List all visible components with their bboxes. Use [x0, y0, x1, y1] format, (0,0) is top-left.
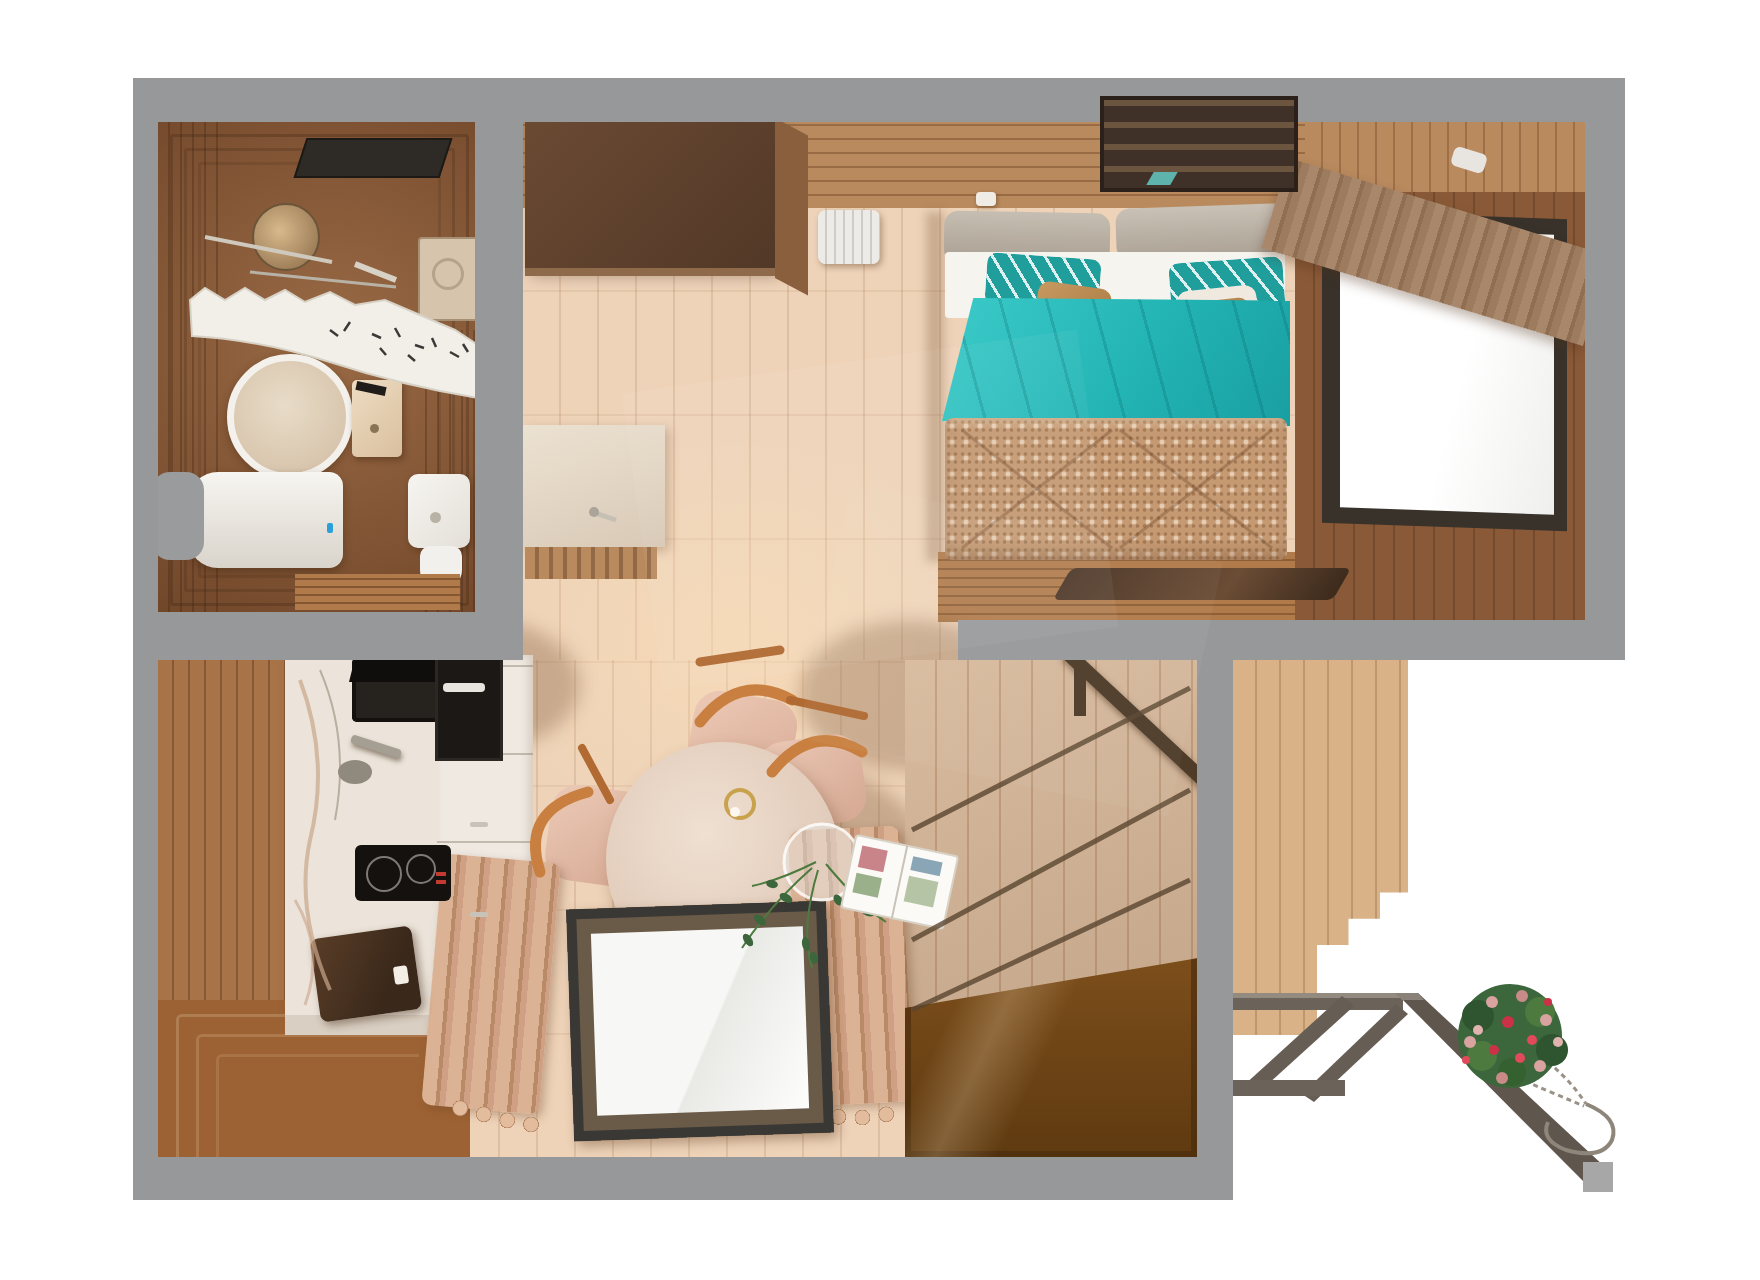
- round-mirror: [227, 354, 353, 480]
- water-boiler: [188, 472, 343, 568]
- oven-handle: [443, 683, 485, 692]
- ceiling-vent: [294, 138, 453, 178]
- shower-head: [252, 203, 320, 271]
- toilet-button: [430, 512, 441, 523]
- wall-living-right: [1197, 660, 1233, 1200]
- sink-drain-dot: [370, 424, 379, 433]
- shower-drain: [432, 258, 464, 290]
- wood-bath-mat: [295, 574, 460, 610]
- burner-right-icon: [406, 854, 436, 884]
- boiler-led: [327, 523, 333, 533]
- cooktop-red-display: [436, 872, 446, 876]
- deck-plank-wall: [1233, 660, 1408, 1035]
- burner-left-icon: [366, 856, 402, 892]
- wall-right: [1585, 78, 1625, 660]
- toilet-tank: [408, 474, 470, 548]
- dark-closet-side-face: [775, 118, 808, 296]
- glass-floor-pane: [591, 926, 809, 1115]
- corner-plank-line-3: [216, 1054, 419, 1160]
- wall-bathroom-bottom: [158, 612, 475, 660]
- wall-bathroom-right: [475, 122, 523, 660]
- gray-mat: [152, 472, 204, 560]
- coffee-machine-screen: [393, 965, 409, 985]
- console-slat-base: [525, 547, 657, 579]
- kitchen-faucet-base: [338, 760, 372, 784]
- cabinet-handle-2: [470, 912, 488, 917]
- wall-top: [133, 78, 1625, 122]
- wall-shelf: [1100, 96, 1298, 192]
- floorplan-render: [0, 0, 1760, 1280]
- wall-left: [133, 78, 158, 1200]
- bed-wall-spot-lamp: [976, 192, 996, 206]
- dark-closet: [525, 118, 775, 270]
- radiator: [818, 210, 880, 264]
- wall-bottom: [133, 1157, 1233, 1200]
- wall-oven: [435, 655, 503, 761]
- cabinet-handle-1: [470, 822, 488, 827]
- dark-closet-bottom-edge: [525, 268, 775, 276]
- lounger-left-roll-ends: [446, 1083, 560, 1140]
